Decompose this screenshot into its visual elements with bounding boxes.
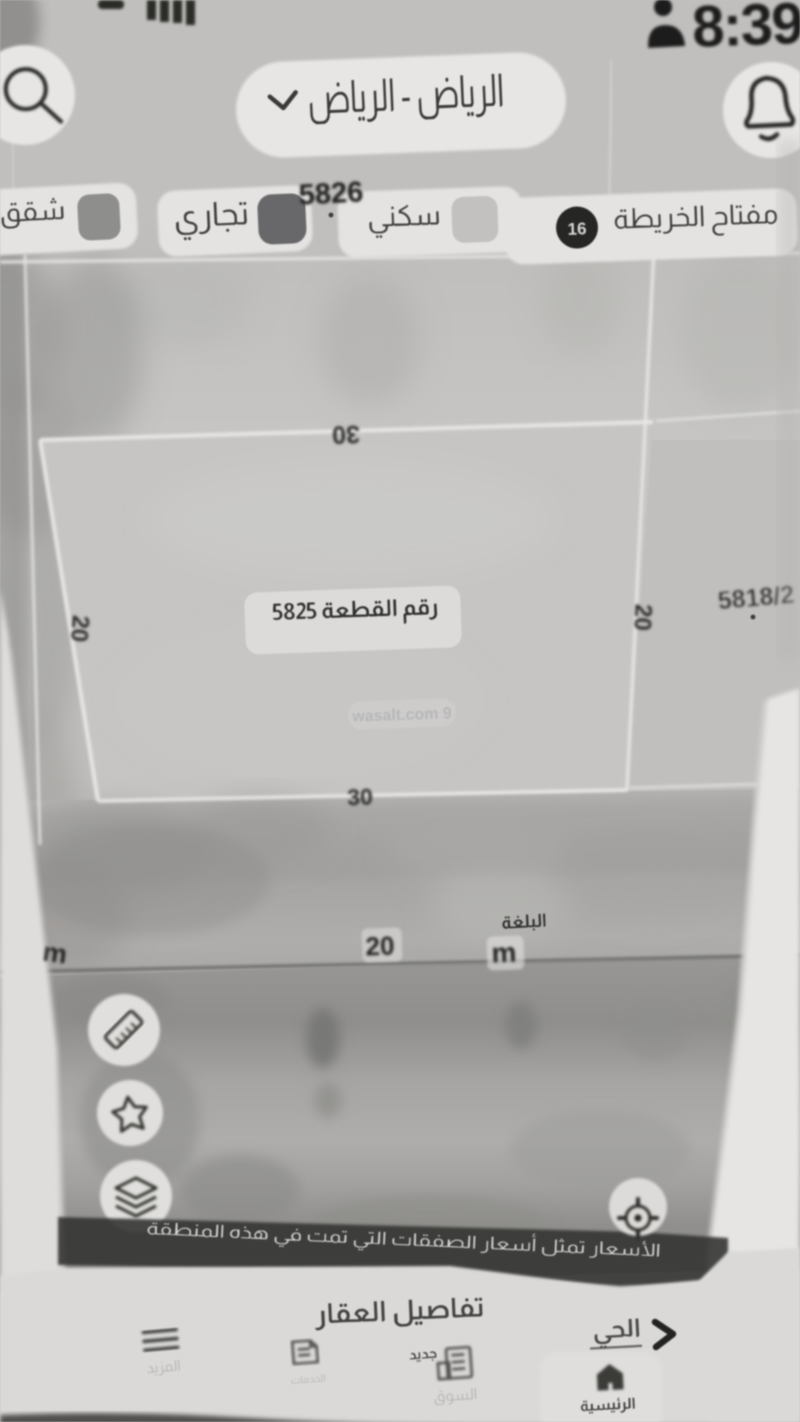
svg-text:30: 30 [332,420,361,449]
svg-text:wasalt.com 9: wasalt.com 9 [351,705,452,726]
svg-text:20: 20 [628,603,656,631]
svg-text:30: 30 [347,784,373,811]
svg-text:16: 16 [567,219,587,239]
svg-text:20: 20 [65,614,94,643]
svg-text:5826: 5826 [298,176,364,211]
svg-text:m: m [491,937,517,969]
svg-text:20: 20 [365,931,395,962]
svg-text:8:39: 8:39 [691,0,800,60]
